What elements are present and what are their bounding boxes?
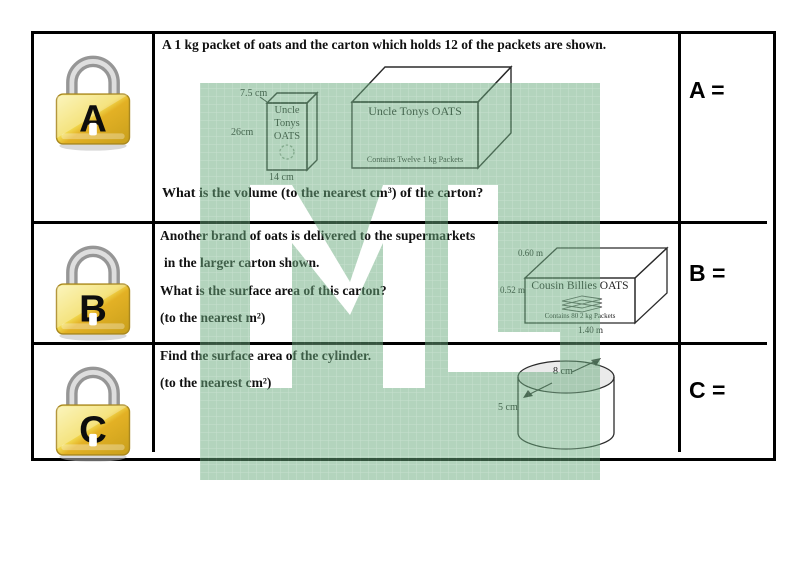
carton-b-depth-label: 0.60 m	[518, 248, 543, 258]
carton-b-note: Contains 80 2 kg Packets	[525, 312, 635, 320]
padlock-b-icon: B	[45, 228, 141, 342]
answer-label-b: B =	[689, 260, 725, 287]
oat-sheets-icon	[562, 296, 602, 312]
packet-width-label: 14 cm	[269, 172, 294, 183]
answer-cell-a: A =	[681, 34, 767, 224]
content-cell-a: A 1 kg packet of oats and the carton whi…	[155, 34, 681, 224]
row-a-intro: A 1 kg packet of oats and the carton whi…	[162, 37, 606, 53]
content-cell-c: Find the surface area of the cylinder. (…	[155, 345, 681, 452]
answer-label-a: A =	[689, 77, 725, 104]
row-b-line: (to the nearest m²)	[160, 310, 265, 326]
row-c-line: (to the nearest cm²)	[160, 375, 271, 391]
row-c-line: Find the surface area of the cylinder.	[160, 348, 371, 364]
content-cell-b: Another brand of oats is delivered to th…	[155, 224, 681, 345]
packet-depth-label: 7.5 cm	[240, 88, 267, 99]
carton-b-title: Cousin Billies OATS	[525, 280, 635, 292]
padlock-c-icon: C	[45, 349, 141, 463]
row-b-line: in the larger carton shown.	[164, 255, 319, 271]
carton-a-title: Uncle Tonys OATS	[352, 104, 478, 119]
cylinder-diameter-label: 8 cm	[553, 366, 573, 377]
packet-height-label: 26cm	[231, 127, 253, 138]
lock-cell-b: B	[34, 224, 155, 345]
lock-keyhole	[89, 313, 97, 325]
row-a-question: What is the volume (to the nearest cm³) …	[162, 186, 483, 202]
answer-label-c: C =	[689, 377, 725, 404]
lock-cell-c: C	[34, 345, 155, 452]
padlock-a-icon: A	[45, 38, 141, 152]
cylinder-height-label: 5 cm	[498, 402, 518, 413]
worksheet-page: A A 1 kg packet of oats and the carton w…	[0, 0, 800, 566]
carton-b-height-label: 0.52 m	[500, 285, 525, 295]
answer-cell-c: C =	[681, 345, 767, 452]
answer-cell-b: B =	[681, 224, 767, 345]
lock-cell-a: A	[34, 34, 155, 224]
worksheet-table: A A 1 kg packet of oats and the carton w…	[31, 31, 776, 461]
carton-b-width-label: 1.40 m	[578, 325, 603, 335]
lock-keyhole	[89, 434, 97, 446]
row-b-line: Another brand of oats is delivered to th…	[160, 228, 475, 244]
lock-keyhole	[89, 123, 97, 135]
gear-icon	[280, 145, 294, 159]
carton-a-note: Contains Twelve 1 kg Packets	[352, 155, 478, 164]
row-b-line: What is the surface area of this carton?	[160, 283, 387, 299]
packet-name: Uncle Tonys OATS	[267, 104, 307, 143]
